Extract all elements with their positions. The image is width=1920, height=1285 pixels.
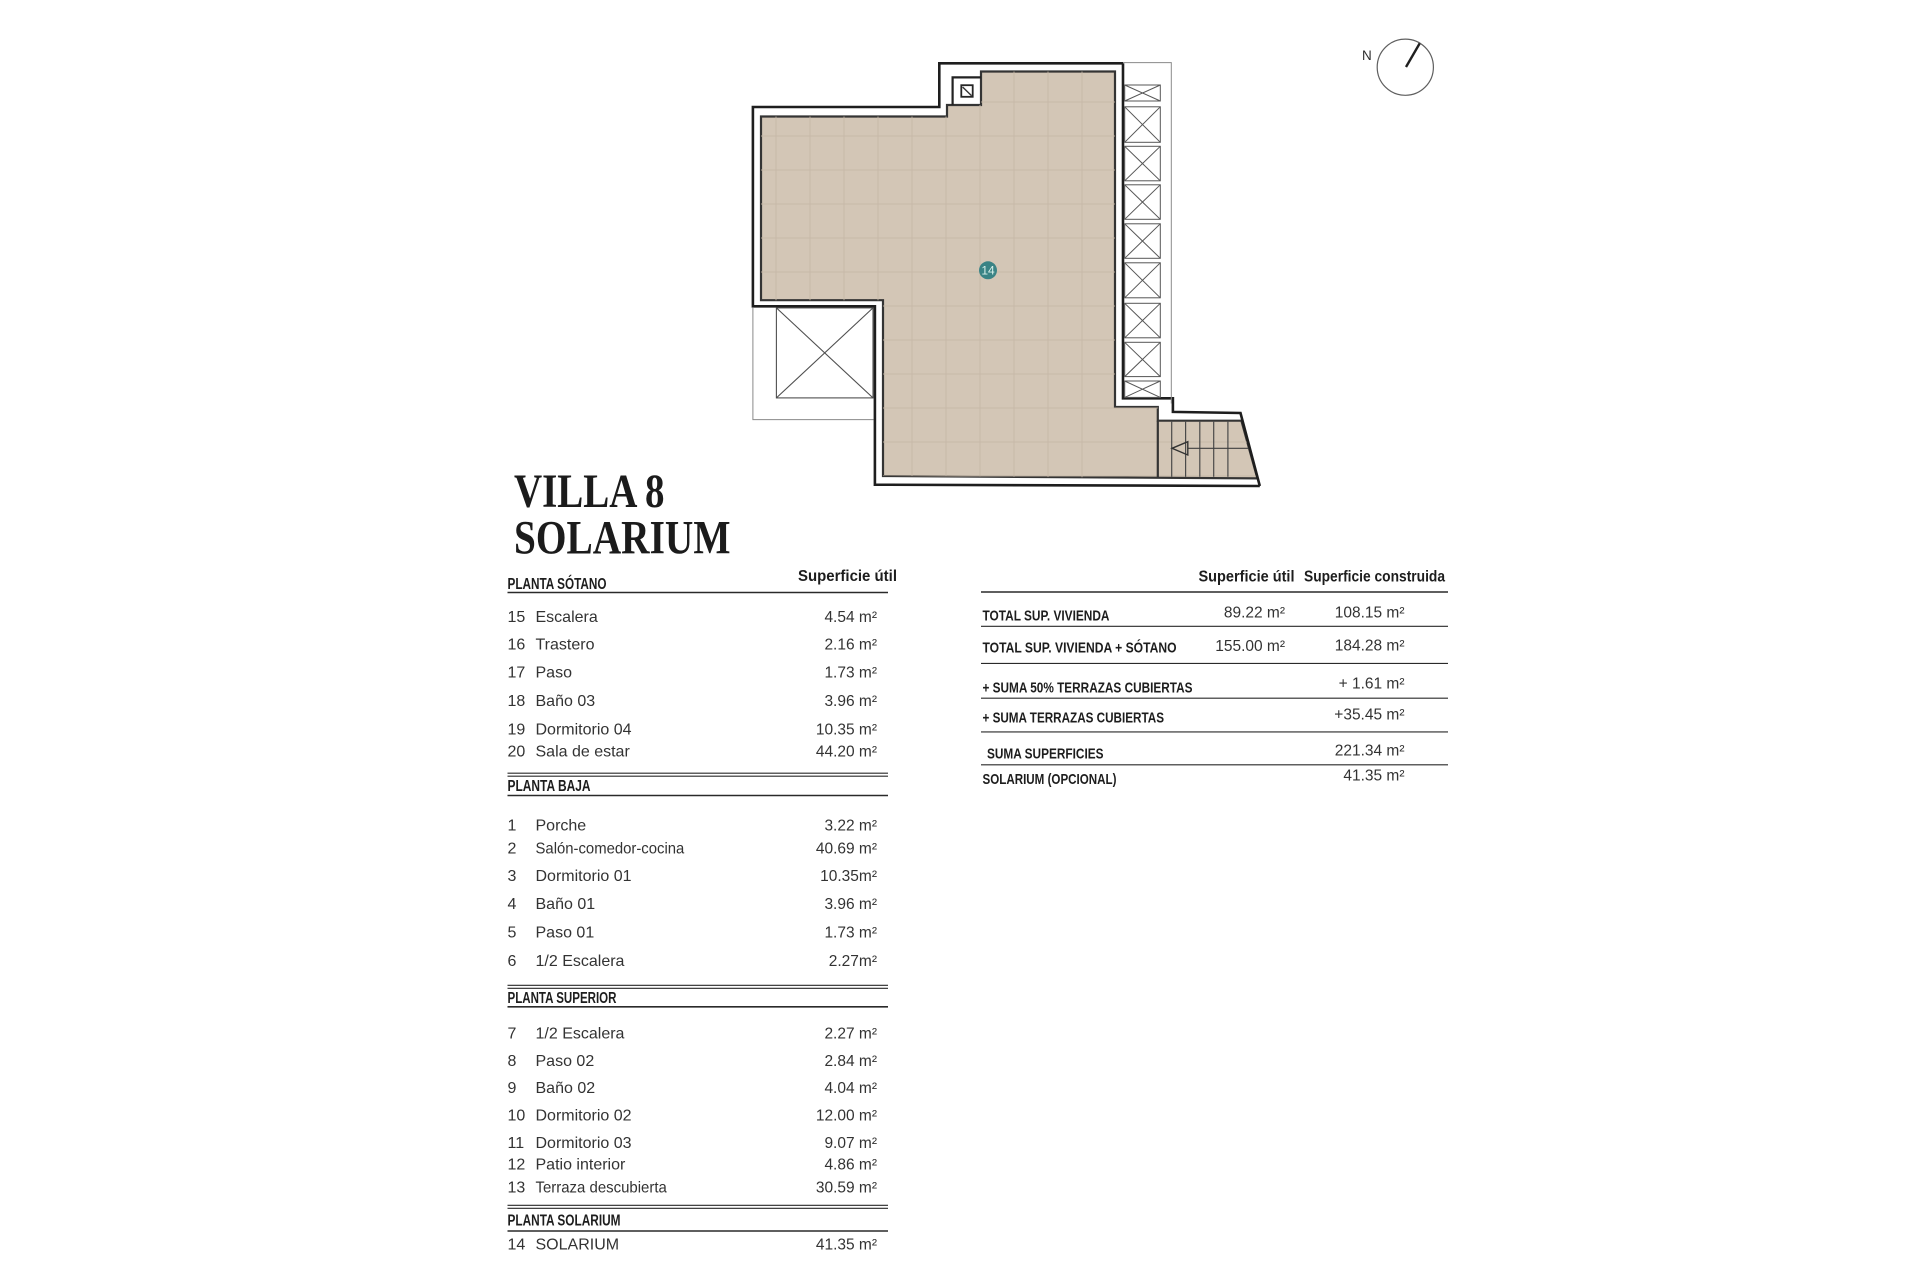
svg-text:Baño 01: Baño 01 xyxy=(536,896,596,913)
svg-text:4.86 m²: 4.86 m² xyxy=(824,1157,877,1174)
svg-text:12.00 m²: 12.00 m² xyxy=(816,1108,877,1125)
svg-text:1/2 Escalera: 1/2 Escalera xyxy=(536,953,625,970)
svg-text:7: 7 xyxy=(508,1026,517,1043)
svg-text:30.59 m²: 30.59 m² xyxy=(816,1180,877,1197)
svg-text:1/2 Escalera: 1/2 Escalera xyxy=(536,1026,625,1043)
svg-text:3: 3 xyxy=(508,868,517,885)
svg-text:Dormitorio 04: Dormitorio 04 xyxy=(536,722,632,739)
svg-text:Paso: Paso xyxy=(536,665,573,682)
svg-text:Dormitorio 01: Dormitorio 01 xyxy=(536,868,632,885)
svg-text:11: 11 xyxy=(508,1135,525,1152)
svg-text:3.96 m²: 3.96 m² xyxy=(824,693,877,710)
svg-text:4.54 m²: 4.54 m² xyxy=(824,609,877,626)
svg-text:PLANTA SUPERIOR: PLANTA SUPERIOR xyxy=(508,990,617,1007)
svg-text:Terraza descubierta: Terraza descubierta xyxy=(536,1180,667,1197)
svg-text:6: 6 xyxy=(508,953,517,970)
svg-text:SOLARIUM (OPCIONAL): SOLARIUM (OPCIONAL) xyxy=(983,771,1117,788)
svg-text:89.22 m²: 89.22 m² xyxy=(1224,605,1285,622)
svg-text:8: 8 xyxy=(508,1053,517,1070)
svg-text:12: 12 xyxy=(508,1157,526,1174)
svg-text:+ SUMA 50% TERRAZAS CUBIERTAS: + SUMA 50% TERRAZAS CUBIERTAS xyxy=(983,680,1193,697)
svg-text:3.96 m²: 3.96 m² xyxy=(824,896,877,913)
svg-text:PLANTA BAJA: PLANTA BAJA xyxy=(508,778,591,795)
svg-text:5: 5 xyxy=(508,925,517,942)
svg-text:40.69 m²: 40.69 m² xyxy=(816,841,877,858)
svg-text:TOTAL SUP. VIVIENDA: TOTAL SUP. VIVIENDA xyxy=(983,608,1110,625)
svg-text:PLANTA SOLARIUM: PLANTA SOLARIUM xyxy=(508,1212,621,1229)
svg-text:SUMA SUPERFICIES: SUMA SUPERFICIES xyxy=(987,746,1104,763)
svg-text:Sala de estar: Sala de estar xyxy=(536,744,631,761)
svg-text:10: 10 xyxy=(508,1108,526,1125)
svg-text:4: 4 xyxy=(508,896,517,913)
svg-text:9: 9 xyxy=(508,1080,517,1097)
svg-text:Dormitorio 02: Dormitorio 02 xyxy=(536,1108,632,1125)
svg-text:VILLA 8: VILLA 8 xyxy=(514,465,665,518)
svg-text:+35.45 m²: +35.45 m² xyxy=(1334,707,1404,724)
svg-text:41.35 m²: 41.35 m² xyxy=(816,1237,877,1254)
svg-text:18: 18 xyxy=(508,693,526,710)
svg-text:1.73 m²: 1.73 m² xyxy=(824,925,877,942)
svg-text:15: 15 xyxy=(508,609,526,626)
svg-text:Superficie construida: Superficie construida xyxy=(1304,569,1445,586)
svg-text:2.16 m²: 2.16 m² xyxy=(824,637,877,654)
svg-text:10.35m²: 10.35m² xyxy=(820,868,877,885)
svg-text:155.00 m²: 155.00 m² xyxy=(1215,638,1285,655)
svg-text:Superficie útil: Superficie útil xyxy=(798,568,897,585)
svg-text:Escalera: Escalera xyxy=(536,609,598,626)
svg-text:Salón-comedor-cocina: Salón-comedor-cocina xyxy=(536,841,685,858)
svg-text:Baño 02: Baño 02 xyxy=(536,1080,596,1097)
svg-text:2: 2 xyxy=(508,841,517,858)
svg-text:Superficie útil: Superficie útil xyxy=(1199,569,1295,586)
svg-text:19: 19 xyxy=(508,722,526,739)
svg-text:41.35 m²: 41.35 m² xyxy=(1343,768,1404,785)
svg-text:9.07 m²: 9.07 m² xyxy=(824,1135,877,1152)
svg-text:Paso 01: Paso 01 xyxy=(536,925,595,942)
svg-text:108.15 m²: 108.15 m² xyxy=(1335,605,1405,622)
svg-text:14: 14 xyxy=(508,1237,526,1254)
svg-text:1.73 m²: 1.73 m² xyxy=(824,665,877,682)
svg-text:Trastero: Trastero xyxy=(536,637,595,654)
svg-text:TOTAL SUP. VIVIENDA + SÓTANO: TOTAL SUP. VIVIENDA + SÓTANO xyxy=(983,639,1177,657)
svg-text:2.27m²: 2.27m² xyxy=(829,953,877,970)
svg-text:SOLARIUM: SOLARIUM xyxy=(536,1237,620,1254)
svg-text:17: 17 xyxy=(508,665,526,682)
svg-text:2.84 m²: 2.84 m² xyxy=(824,1053,877,1070)
svg-text:1: 1 xyxy=(508,818,517,835)
svg-text:13: 13 xyxy=(508,1180,526,1197)
svg-text:N: N xyxy=(1362,48,1372,63)
svg-text:16: 16 xyxy=(508,637,526,654)
svg-text:3.22 m²: 3.22 m² xyxy=(824,818,877,835)
svg-text:10.35 m²: 10.35 m² xyxy=(816,722,877,739)
svg-text:SOLARIUM: SOLARIUM xyxy=(514,512,731,565)
svg-text:Paso 02: Paso 02 xyxy=(536,1053,595,1070)
svg-text:4.04 m²: 4.04 m² xyxy=(824,1080,877,1097)
svg-text:Patio interior: Patio interior xyxy=(536,1157,626,1174)
svg-text:44.20 m²: 44.20 m² xyxy=(816,744,877,761)
svg-text:+ SUMA TERRAZAS CUBIERTAS: + SUMA TERRAZAS CUBIERTAS xyxy=(983,710,1165,727)
svg-text:221.34 m²: 221.34 m² xyxy=(1335,743,1405,760)
svg-text:Porche: Porche xyxy=(536,818,587,835)
svg-text:2.27 m²: 2.27 m² xyxy=(824,1026,877,1043)
svg-text:20: 20 xyxy=(508,744,526,761)
svg-text:Baño 03: Baño 03 xyxy=(536,693,596,710)
svg-text:+ 1.61 m²: + 1.61 m² xyxy=(1339,676,1405,693)
svg-text:PLANTA SÓTANO: PLANTA SÓTANO xyxy=(508,575,607,593)
svg-text:Dormitorio 03: Dormitorio 03 xyxy=(536,1135,632,1152)
svg-text:14: 14 xyxy=(981,264,995,278)
svg-text:184.28 m²: 184.28 m² xyxy=(1335,638,1405,655)
